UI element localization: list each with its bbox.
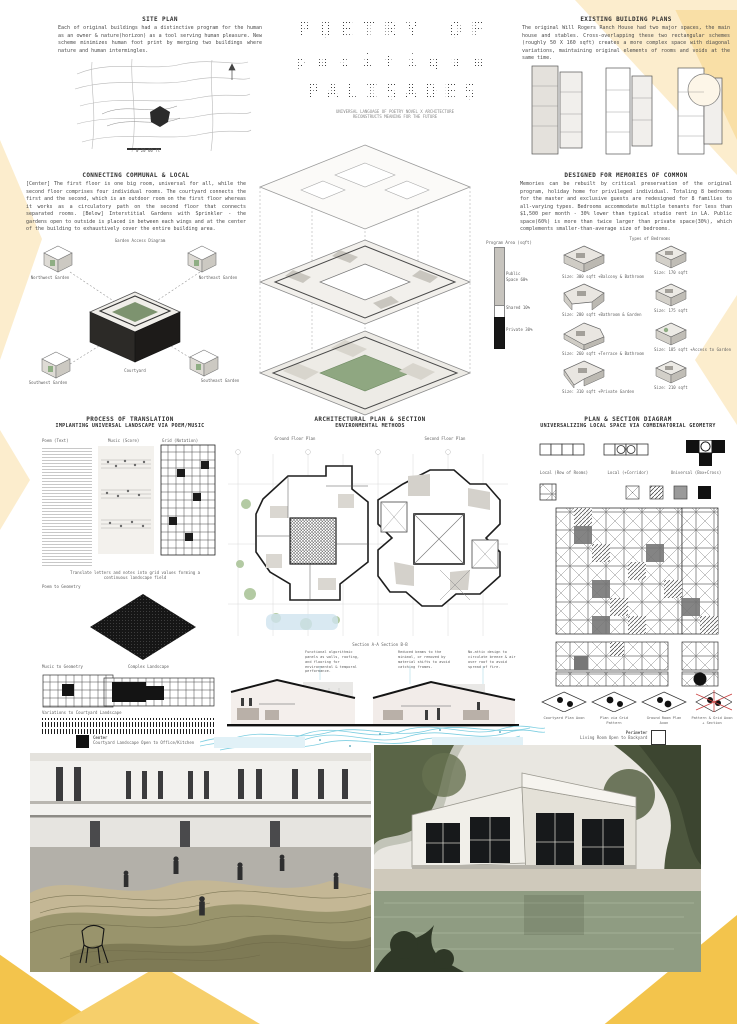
perimeter-swatch-icon [651,730,666,745]
site-plan-drawing [72,54,252,154]
diagram-bottom-label-2: Plan via Grid Pattern [592,716,636,726]
title-line-2: pacifique [270,52,520,72]
connecting-body: [Center] The first floor is one big room… [26,181,246,234]
courtyard-render [30,753,371,972]
bedroom-item: Size: 260 sqft +Terrace & Bathroom [562,321,654,356]
subtitle-line-2: RECONSTRUCTS MEANING FOR THE FUTURE [270,114,520,119]
poem-geometry-diamond [88,592,198,662]
garden-label-ne: Northeast Garden [186,275,250,280]
landscape-grids [42,674,216,708]
program-bar-label-3: Private 30% [506,327,534,332]
bedroom-item: Size: 300 sqft +Balcony & Bathroom [562,244,654,279]
caption-right-sub: Living Room Open to Backyard [580,735,647,740]
site-plan-body: Each of original buildings had a distinc… [58,25,262,55]
existing-plans-section: EXISTING BUILDING PLANS The original Wil… [522,16,730,63]
connecting-section: CONNECTING COMMUNAL & LOCAL [Center] The… [26,172,246,234]
process-heading: PROCESS OF TRANSLATION [40,416,220,423]
existing-plans-drawings [528,62,728,162]
plans-heading: ARCHITECTURAL PLAN & SECTION [280,416,460,423]
memories-body: Memories can be rebuilt by critical pres… [520,181,732,234]
diagram-bottom-label-3: Ground Room Plan Axon [642,716,686,726]
program-bar: Program Area (sqft) Public Space 60% Sha… [486,240,532,347]
section-b [373,682,515,724]
second-floor-plan [378,470,500,606]
ground-plan-label: Ground Floor Plan [250,436,340,441]
exterior-render [374,745,701,972]
program-bar-public [494,247,505,307]
diagram-heading: PLAN & SECTION DIAGRAM [528,416,728,423]
process-panel1-label: Poem (Text) [42,438,82,443]
bedroom-axon [654,321,688,347]
deco-bottom-left-yellow-2 [60,965,260,1024]
program-bar-label-1: Public Space 60% [506,271,534,282]
bedroom-item: Size: 280 sqft +Bathroom & Garden [562,282,654,317]
diagram-subheading: UNIVERSALIZING LOCAL SPACE VIA COMBINATO… [528,423,728,429]
bedroom-item: Size: 170 sqft [654,244,734,279]
process-panel3-label: Grid (Notation) [162,438,210,443]
diagram-bottom-label-1: Courtyard Plan Axon [542,716,586,721]
memories-heading: DESIGNED FOR MEMORIES OF COMMON [520,172,732,179]
bedroom-axon [562,282,606,312]
site-plan-scale: 0 20 60 ft [118,148,178,153]
diagram-bottom-label-4: Pattern & Grid Axon + Section [690,716,734,726]
title-block: POETRY OF pacifique PALISADES UNIVERSAL … [270,18,520,120]
program-bar-label-2: Shared 10% [506,305,534,310]
site-plan-heading: SITE PLAN [58,16,262,23]
banner-left: POETRY OF [214,737,305,748]
process-step3-label: Complex Landscape [128,664,188,669]
center-swatch-icon [76,735,89,748]
bedroom-item: Size: 175 sqft [654,282,734,317]
caption-left: Center Courtyard Landscape Open to Offic… [76,735,194,748]
garden-label-nw: Northwest Garden [18,275,82,280]
roof-plate [260,145,470,229]
presentation-board: POETRY OF pacifique PALISADES UNIVERSAL … [0,0,737,1024]
bedroom-item: Size: 185 sqft +Access to Garden [654,321,734,356]
bedroom-item: Size: 310 sqft +Private Garden [562,359,654,394]
garden-label-sw: Southwest Garden [16,380,80,385]
grid-notation-panel [160,444,216,556]
process-header: PROCESS OF TRANSLATION IMPLANTING UNIVER… [40,416,220,429]
process-panel2-label: Music (Score) [108,438,156,443]
garden-label-center: Courtyard [103,368,167,373]
courtyard-axon-center [90,292,180,362]
poem-text-panel [42,448,92,566]
bedrooms-grid: Size: 300 sqft +Balcony & Bathroom Size:… [562,244,734,395]
process-step1-label: Poem to Geometry [42,584,92,589]
plans-subheading: ENVIRONMENTAL METHODS [280,423,460,429]
combinatorial-matrix [534,440,732,712]
caption-left-sub: Courtyard Landscape Open to Office/Kitch… [93,740,194,745]
program-bar-title: Program Area (sqft) [486,240,532,245]
plans-header: ARCHITECTURAL PLAN & SECTION ENVIRONMENT… [280,416,460,429]
memories-section: DESIGNED FOR MEMORIES OF COMMON Memories… [520,172,732,234]
bedroom-axon [562,359,606,389]
bedroom-item: Size: 210 sqft [654,359,734,394]
existing-plans-heading: EXISTING BUILDING PLANS [522,16,730,23]
caption-right: Perimeter Living Room Open to Backyard [580,730,666,745]
music-score-panel [98,446,154,554]
second-floor-plate [260,240,470,324]
connecting-heading: CONNECTING COMMUNAL & LOCAL [26,172,246,179]
title-line-1: POETRY OF [270,18,520,42]
process-subheading: IMPLANTING UNIVERSAL LANDSCAPE VIA POEM/… [40,423,220,429]
floor-plans-drawing [218,444,516,640]
process-step4-label: Variations to Courtyard Landscape [42,710,132,715]
bedrooms-title: Types of Bedrooms [600,236,700,241]
connecting-cluster-title: Garden Access Diagram [90,238,190,243]
program-bar-private [494,317,505,349]
title-line-3: PALISADES [270,80,520,104]
sections-label: Section A-A Section B-B [320,642,440,647]
process-step2-label: Music to Geometry [42,664,92,669]
bedroom-axon [562,244,606,274]
bedroom-axon [654,282,688,308]
courtyard-variations-barcode [42,718,216,734]
diagram-header: PLAN & SECTION DIAGRAM UNIVERSALIZING LO… [528,416,728,429]
deco-left-wedge-2 [0,430,30,530]
existing-plans-body: The original Will Rogers Ranch House had… [522,25,730,63]
exploded-axonometric [245,135,485,420]
process-caption: Translate letters and notes into grid va… [60,570,210,581]
site-plan-section: SITE PLAN Each of original buildings had… [58,16,262,55]
bedroom-axon [654,359,688,385]
garden-label-se: Southeast Garden [188,378,252,383]
bedroom-axon [562,321,606,351]
ground-floor-plate [260,331,470,415]
second-plan-label: Second Floor Plan [400,436,490,441]
bedroom-axon [654,244,688,270]
